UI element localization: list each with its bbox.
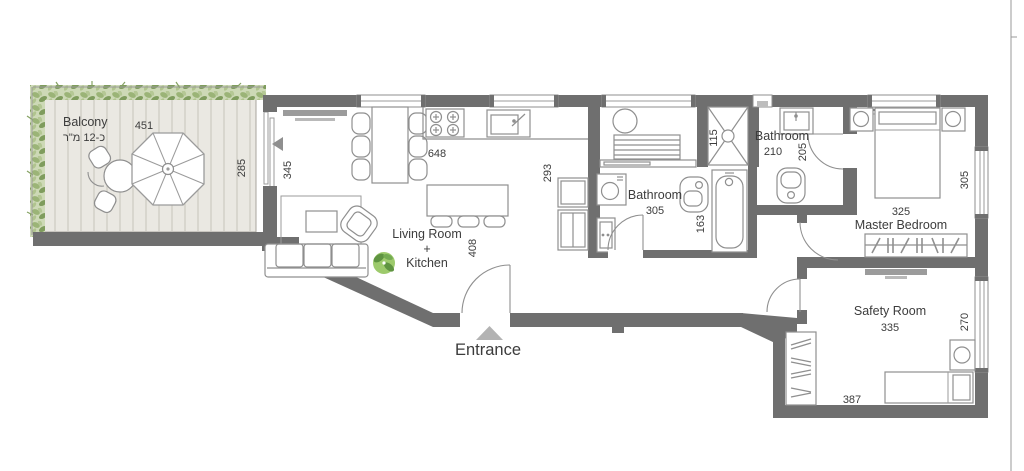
safety-door — [767, 279, 807, 312]
balcony-label: Balcony — [63, 115, 108, 129]
master-size: 325 — [892, 206, 910, 218]
closet — [865, 234, 967, 257]
safety-dim-bottom: 387 — [843, 394, 861, 406]
bathtub — [712, 170, 747, 252]
bathroom-main: Bathroom 305 163 — [597, 170, 747, 258]
stool — [484, 216, 505, 227]
utility-area — [600, 109, 696, 167]
bath2-master-wall-lower — [843, 168, 857, 215]
sofa — [265, 244, 368, 277]
utility-shower-wall — [697, 95, 708, 167]
balcony-area-note: כ-12 מ"ר — [63, 132, 105, 144]
safety-size: 335 — [881, 322, 899, 334]
washing-machine — [597, 174, 626, 205]
stool — [431, 216, 452, 227]
entrance-opening — [460, 313, 510, 327]
kitchen-island — [427, 185, 508, 227]
bath-cabinet — [597, 218, 615, 252]
window-master-east — [975, 147, 988, 218]
safety-door-jamb-bottom — [797, 310, 807, 324]
shower-stall: 115 — [708, 107, 748, 165]
window-utility — [602, 95, 695, 107]
page-border — [1011, 0, 1017, 471]
balcony: Balcony כ-12 מ"ר 451 285 — [27, 81, 266, 237]
safety-dim-right: 270 — [959, 313, 971, 331]
living-dim-left: 345 — [282, 161, 294, 179]
floor-plan-page: Balcony כ-12 מ"ר 451 285 — [0, 0, 1024, 471]
living-label-3: Kitchen — [406, 256, 448, 270]
refrigerator — [558, 178, 588, 207]
nightstand-left — [850, 108, 873, 131]
bookshelf — [786, 332, 816, 405]
master-door-jamb — [797, 213, 807, 223]
balcony-dim-depth: 285 — [236, 159, 248, 177]
water-heater — [613, 109, 637, 133]
nightstand-right — [942, 108, 965, 131]
safety-tv — [865, 269, 927, 279]
bathroom-second-size: 210 — [764, 146, 782, 158]
utility-sill — [600, 160, 696, 167]
bathroom-main-size: 305 — [646, 205, 664, 217]
entrance-wall-left — [433, 313, 460, 327]
bathroom-second: Bathroom 210 205 — [755, 108, 857, 203]
wall-notch — [612, 327, 624, 333]
living-label-1: Living Room — [392, 227, 461, 241]
shower-dim: 115 — [708, 129, 720, 147]
entrance-arrow-icon — [476, 326, 503, 340]
living-dim-mid: 408 — [467, 239, 479, 257]
entrance: Entrance — [455, 265, 521, 359]
dining-table-set — [352, 107, 427, 183]
safety-west-wall — [773, 336, 785, 408]
living-dim-top: 648 — [428, 148, 446, 160]
safety-south-wall — [773, 405, 988, 418]
master-label: Master Bedroom — [855, 218, 947, 232]
tall-cabinet — [558, 210, 588, 250]
balcony-table — [104, 160, 136, 192]
master-dim-right: 305 — [959, 171, 971, 189]
dining-chair — [352, 113, 370, 134]
plant — [372, 252, 396, 274]
bath2-door — [808, 134, 857, 169]
dining-chair — [409, 113, 427, 134]
master-bedroom: 325 Master Bedroom 305 — [797, 108, 971, 260]
floor-plan-drawing: Balcony כ-12 מ"ר 451 285 — [0, 0, 1024, 471]
window-kitchen — [490, 95, 558, 107]
stool — [458, 216, 479, 227]
window-dining — [357, 95, 425, 107]
double-bed — [875, 108, 940, 198]
entrance-door-arc — [462, 265, 510, 313]
bathroom-second-dim: 205 — [797, 143, 809, 161]
balcony-sliding-door — [263, 107, 283, 191]
window-safety-east — [975, 277, 988, 372]
bathroom-main-label: Bathroom — [628, 188, 682, 202]
drying-rack — [614, 135, 680, 159]
balcony-south-wall — [33, 232, 265, 246]
vent-opening — [753, 95, 772, 107]
safety-label: Safety Room — [854, 304, 926, 318]
dining-table — [372, 107, 408, 183]
living-dim-right: 293 — [542, 164, 554, 182]
single-bed — [885, 372, 973, 403]
tv-console — [283, 110, 347, 121]
living-label-2: + — [423, 242, 430, 256]
bathroom-main-dim: 163 — [695, 215, 707, 233]
dining-chair — [352, 136, 370, 157]
parasol-umbrella — [132, 133, 204, 205]
entrance-wall-right — [510, 313, 743, 327]
stove — [426, 109, 464, 137]
safety-door-jamb-top — [797, 267, 807, 279]
dining-chair — [409, 159, 427, 180]
safety-nightstand — [950, 340, 975, 370]
coffee-table — [306, 211, 337, 232]
dining-chair — [352, 159, 370, 180]
balcony-dim-width: 451 — [135, 120, 153, 132]
toilet-main — [680, 177, 708, 212]
safety-room: Safety Room 335 270 387 — [767, 269, 975, 406]
entrance-label: Entrance — [455, 341, 521, 359]
armchair — [337, 202, 381, 245]
master-door — [797, 222, 838, 260]
kitchen-sink — [487, 110, 530, 137]
master-safety-wall — [797, 257, 988, 268]
toilet-second — [777, 168, 805, 203]
living-room-kitchen: Living Room + Kitchen 345 648 293 408 — [265, 107, 588, 277]
bathroom-second-label: Bathroom — [755, 129, 809, 143]
